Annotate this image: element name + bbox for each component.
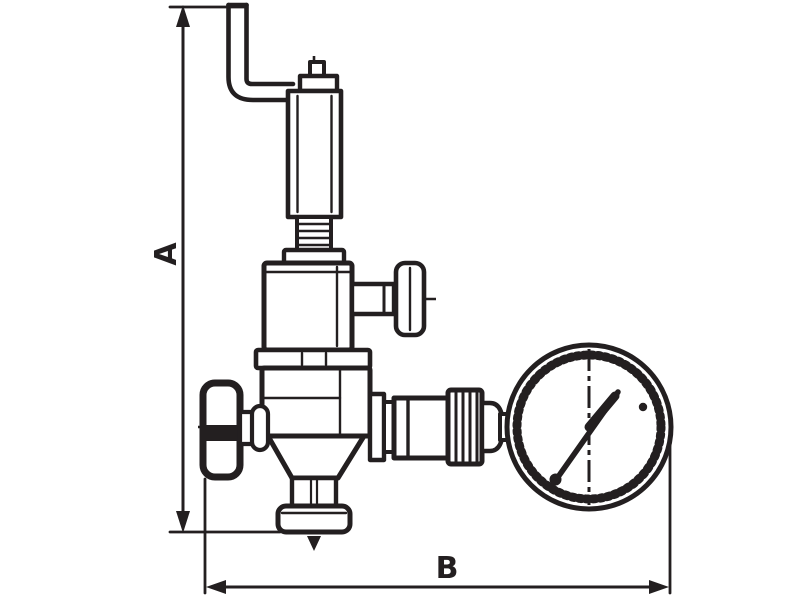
bonnet-body bbox=[264, 263, 352, 350]
housing-cylinder bbox=[288, 91, 341, 217]
fitting-block bbox=[394, 398, 448, 458]
technical-drawing-canvas: A B bbox=[0, 0, 800, 598]
dimension-a-label: A bbox=[149, 242, 184, 266]
valve-technical-drawing: A B bbox=[0, 0, 800, 598]
dial-pin bbox=[639, 403, 647, 411]
dim-a-arrow-bottom-icon bbox=[176, 511, 190, 533]
body-mid-section bbox=[262, 368, 370, 436]
relief-discharge-pipe bbox=[229, 5, 294, 100]
handwheel-boss bbox=[252, 406, 268, 450]
dim-b-arrow-left-icon bbox=[206, 580, 226, 594]
outlet-neck bbox=[292, 478, 336, 506]
pressure-gauge bbox=[507, 345, 671, 509]
body-top-band bbox=[256, 350, 370, 368]
pipe-inner-edge bbox=[247, 5, 294, 84]
handwheel-hub bbox=[206, 425, 237, 441]
handwheel bbox=[203, 383, 268, 477]
spring-housing bbox=[284, 62, 344, 263]
dimension-b-label: B bbox=[436, 551, 459, 586]
side-t-handle bbox=[352, 263, 424, 335]
valve-body bbox=[256, 350, 370, 532]
body-lower-taper bbox=[268, 436, 364, 478]
t-handle-stem bbox=[352, 284, 394, 314]
bottom-outlet-flange bbox=[278, 506, 350, 532]
body-outlet-step bbox=[370, 394, 384, 460]
bonnet bbox=[264, 263, 352, 350]
needle-counterweight bbox=[550, 474, 562, 486]
flow-direction-arrow-icon bbox=[307, 536, 321, 551]
dim-b-arrow-right-icon bbox=[649, 580, 669, 594]
union-fitting bbox=[370, 390, 512, 464]
